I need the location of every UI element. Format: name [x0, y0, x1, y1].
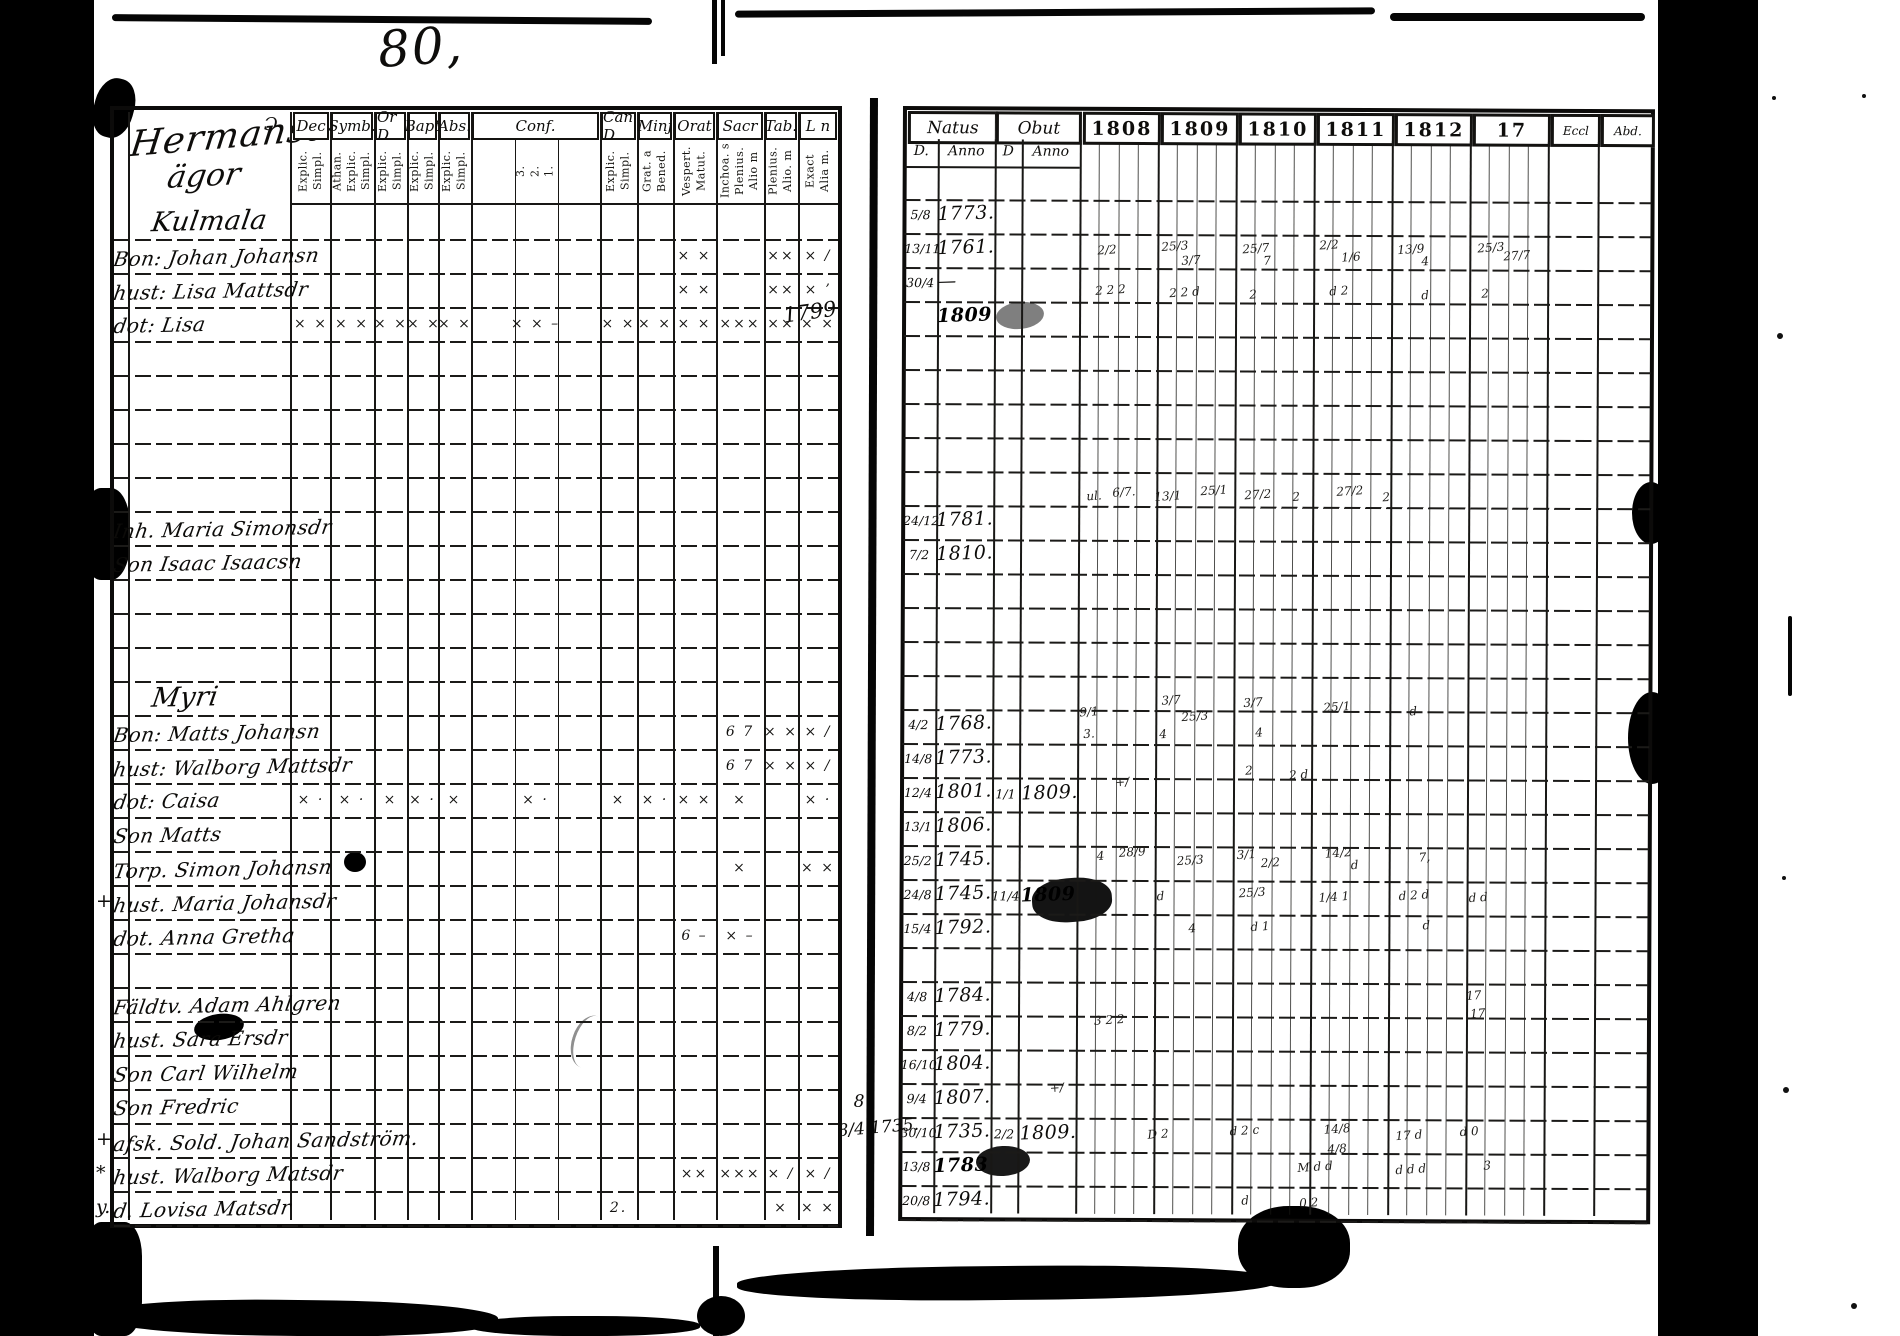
gutter-note: 8 [854, 1092, 865, 1112]
year-grid-mark: d 2 [1329, 283, 1349, 298]
year-column-header: 1810 [1239, 112, 1317, 145]
year-grid-mark: 25/3 [1181, 708, 1209, 724]
year-grid-mark: 25/3 [1176, 852, 1204, 868]
year-grid-mark: 4 [1421, 254, 1430, 268]
year-grid-mark: 1/6 [1341, 249, 1361, 264]
obiit-day: 1/1 [992, 786, 1019, 801]
natus-year: 1773. [937, 201, 995, 225]
year-grid-mark: 2/2 [1260, 855, 1280, 870]
natus-day-subheader: D. [905, 143, 938, 159]
obiit-day: 11/4 [992, 888, 1019, 903]
year-grid-mark: 3 [1483, 1158, 1492, 1172]
year-grid-mark: 3/7 [1243, 695, 1263, 710]
year-grid-mark: 7, [1418, 850, 1430, 865]
year-grid-mark: 1/4 1 [1318, 889, 1350, 905]
year-grid-mark: 0 2 [1299, 1195, 1319, 1210]
right-table-border [898, 106, 1655, 1224]
year-grid-mark: 17 [1470, 1006, 1486, 1021]
natus-year: 1810. [936, 541, 994, 565]
year-grid-mark: 6/7. [1112, 484, 1136, 499]
year-grid-mark: M d d [1297, 1159, 1333, 1175]
natus-year: 1784. [934, 983, 992, 1007]
obiit-year: 1809 [1020, 883, 1076, 907]
year-grid-mark: +/ [1049, 1080, 1064, 1095]
year-grid-mark: 25/1 [1323, 699, 1351, 715]
year-grid-mark: 2 [1481, 286, 1490, 300]
obiit-year: 1809. [1019, 1121, 1077, 1145]
natus-year: 1806. [935, 813, 993, 837]
year-grid-mark: 2 2 2 [1095, 282, 1126, 298]
eccl-abd-header: Abd. [1601, 114, 1655, 147]
natus-year: 1794. [933, 1187, 991, 1211]
year-grid-mark: 25/3 [1477, 240, 1505, 256]
natus-day: 24/8 [902, 887, 934, 902]
year-grid-mark: 2 [1249, 287, 1258, 301]
year-grid-mark: 7 [1263, 253, 1272, 267]
year-grid-mark: +/ [1115, 775, 1130, 790]
year-grid-mark: 2 [1382, 490, 1391, 504]
natus-day: 8/2 [901, 1023, 933, 1038]
year-grid-mark: 4 [1255, 725, 1264, 739]
natus-day: 15/4 [901, 921, 933, 936]
year-grid-mark: 2 d [1289, 767, 1309, 782]
year-grid-mark: d d d [1395, 1161, 1427, 1177]
natus-day: 24/12 [903, 513, 935, 528]
year-grid-mark: 17 [1466, 988, 1482, 1003]
year-grid-mark: 3/1 [1236, 847, 1256, 862]
year-grid-mark: 13/1 [1154, 488, 1182, 504]
natus-day: 7/2 [903, 547, 935, 562]
natus-year: 1792. [934, 915, 992, 939]
year-grid-mark: 14/2 [1324, 845, 1352, 861]
right-page: Natus Obut D. Anno D Anno 18081809181018… [0, 0, 1900, 1336]
year-grid-mark: 4 [1188, 921, 1197, 935]
year-grid-mark: 27/2 [1336, 483, 1364, 499]
year-grid-mark: 2 [1245, 763, 1254, 777]
year-grid-mark: 4 [1096, 849, 1105, 863]
natus-day: 13/11 [904, 241, 936, 256]
natus-header: Natus [908, 111, 998, 144]
natus-label: Natus [927, 118, 979, 138]
natus-year: 1781. [936, 507, 994, 531]
natus-year: 1807. [933, 1085, 991, 1109]
natus-year: 1745. [934, 847, 992, 871]
natus-day: 16/10 [901, 1057, 933, 1072]
natus-day: 4/8 [901, 989, 933, 1004]
year-grid-mark: 2/2 [1097, 242, 1117, 257]
natus-year: 1773. [935, 745, 993, 769]
natus-day: 5/8 [904, 207, 936, 222]
year-grid-mark: d [1421, 288, 1430, 302]
gutter-note: 1799. [782, 296, 845, 328]
year-grid-mark: d [1156, 889, 1165, 903]
natus-year: 1801. [935, 779, 993, 803]
natus-year: 1735. [933, 1119, 991, 1143]
year-grid-mark: 27/2 [1244, 487, 1272, 503]
natus-year: 1768. [935, 711, 993, 735]
year-grid-mark: 3/7 [1161, 693, 1181, 708]
year-grid-mark: d d [1468, 890, 1488, 905]
year-grid-mark: 3 2 2 [1094, 1012, 1125, 1028]
obiit-header: Obut [996, 111, 1082, 144]
obiit-day: 2/2 [990, 1126, 1017, 1141]
scanned-register-spread: 80, Hermansaro ägor Ɔ DecExplic. Simpl.S… [0, 0, 1900, 1336]
year-grid-mark: 25/3 [1238, 885, 1266, 901]
year-grid-mark: d [1350, 858, 1359, 872]
natus-day: 4/2 [902, 717, 934, 732]
natus-day: 20/8 [900, 1193, 932, 1208]
year-grid-mark: d [1409, 704, 1418, 718]
year-grid-mark: 25/1 [1200, 482, 1228, 498]
natus-year: 1804. [934, 1051, 992, 1075]
year-column-header: 1809 [1161, 112, 1239, 145]
year-grid-mark: 3. [1083, 726, 1095, 741]
year-grid-mark: 9/1 [1079, 704, 1099, 719]
obiit-anno-subheader: Anno [1022, 144, 1080, 160]
natus-day: 13/8 [900, 1159, 932, 1174]
obiit-day-subheader: D [995, 143, 1022, 159]
year-grid-mark: 4/8 [1327, 1141, 1347, 1156]
year-grid-mark: d 2 c [1229, 1123, 1260, 1139]
year-column-header: 1812 [1395, 113, 1473, 146]
year-grid-mark: 2 [1292, 489, 1301, 503]
year-grid-mark: 25/3 [1161, 238, 1189, 254]
natus-day: 12/4 [902, 785, 934, 800]
year-grid-mark: d 0 [1459, 1124, 1479, 1139]
natus-day: 9/4 [901, 1091, 933, 1106]
year-grid-mark: 14/8 [1323, 1121, 1351, 1137]
year-grid-mark: D 2 [1147, 1126, 1169, 1141]
natus-anno-subheader: Anno [938, 143, 995, 159]
year-grid-mark: d [1422, 918, 1431, 932]
natus-year: 1745. [934, 881, 992, 905]
year-grid-mark: 2/2 [1319, 237, 1339, 252]
year-grid-mark: ul. [1086, 488, 1102, 503]
obiit-year: 1809. [1021, 781, 1079, 805]
year-column-header: 17 [1473, 113, 1551, 146]
year-grid-mark: 28/9 [1118, 844, 1146, 860]
year-grid-mark: d [1241, 1193, 1250, 1207]
obiit-label: Obut [1018, 118, 1061, 138]
natus-year: — [937, 270, 957, 293]
natus-year: 1761. [937, 235, 995, 259]
natus-year: 1779. [934, 1017, 992, 1041]
natus-year: 1783 [933, 1153, 989, 1177]
natus-day: 30/4 [904, 275, 936, 290]
year-column-header: 1811 [1317, 113, 1395, 146]
year-grid-mark: d 1 [1250, 919, 1270, 934]
natus-year: 1809 [937, 303, 993, 327]
year-grid-mark: 2 2 d [1169, 284, 1200, 300]
natus-day: 14/8 [902, 751, 934, 766]
year-grid-mark: 27/7 [1503, 248, 1531, 264]
year-grid-mark: 4 [1159, 727, 1168, 741]
year-grid-mark: 17 d [1395, 1127, 1423, 1143]
year-column-header: 1808 [1083, 112, 1161, 145]
natus-day: 25/2 [902, 853, 934, 868]
year-grid-mark: 3/7 [1181, 253, 1201, 268]
eccl-abd-header: Eccl [1551, 114, 1601, 147]
natus-day: 13/1 [902, 819, 934, 834]
year-grid-mark: d 2 d [1398, 887, 1429, 903]
